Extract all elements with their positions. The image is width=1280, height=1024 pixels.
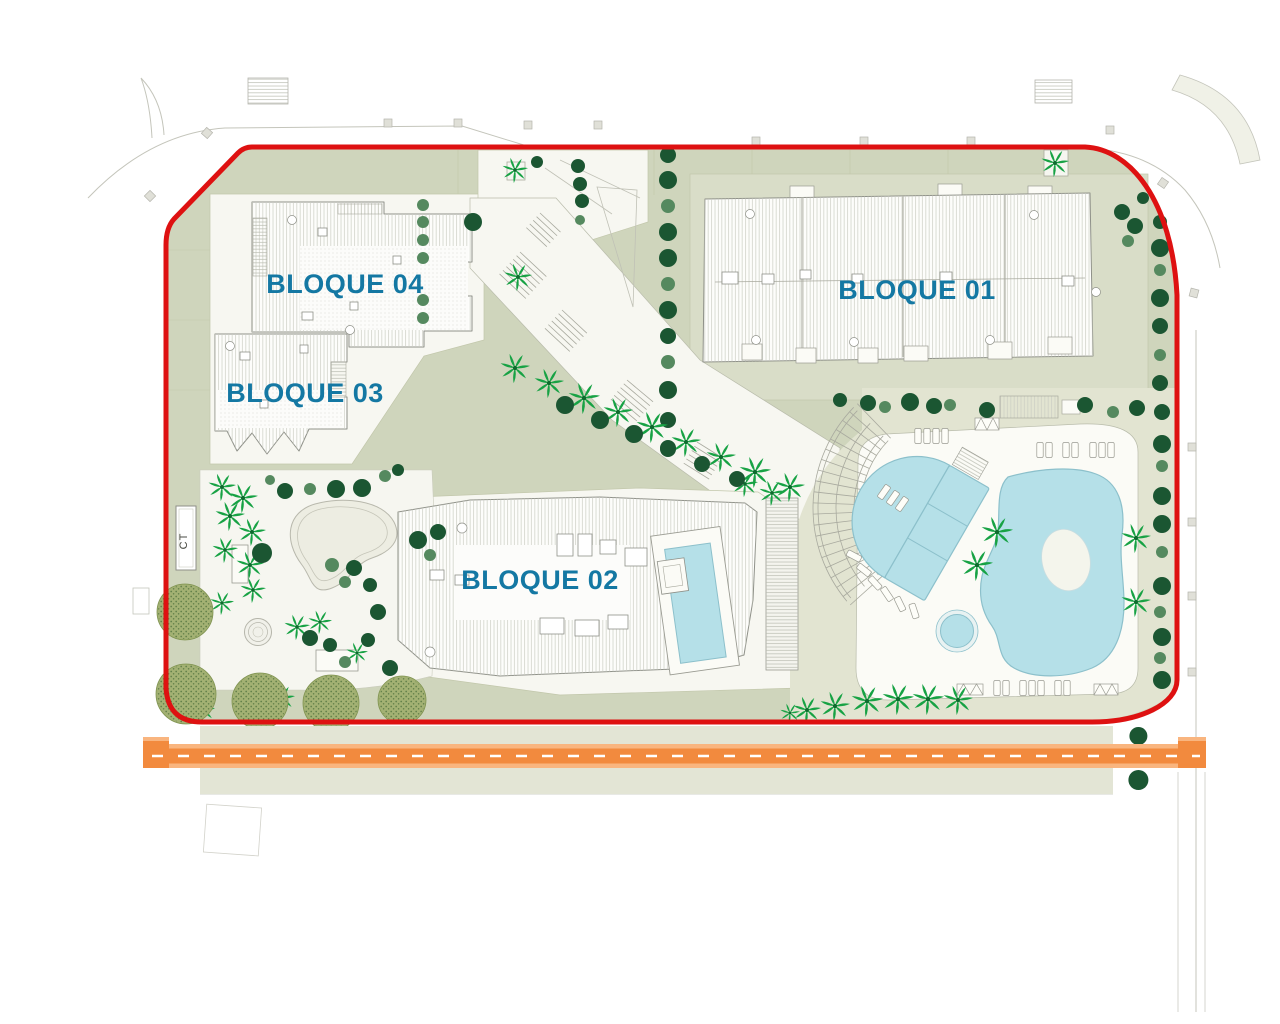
tree-icon bbox=[660, 328, 676, 344]
tree-icon bbox=[417, 312, 429, 324]
tree-icon bbox=[417, 216, 429, 228]
sun-lounger bbox=[1029, 681, 1035, 696]
tree-icon bbox=[424, 549, 436, 561]
kids-pool bbox=[936, 610, 978, 652]
tree-icon bbox=[575, 194, 589, 208]
tree-icon bbox=[363, 578, 377, 592]
tree-icon bbox=[1154, 349, 1166, 361]
sun-lounger bbox=[1038, 681, 1044, 696]
sun-lounger bbox=[994, 681, 1000, 696]
sun-lounger bbox=[1063, 443, 1069, 458]
tree-icon bbox=[659, 301, 677, 319]
tree-icon bbox=[327, 480, 345, 498]
tree-icon bbox=[833, 393, 847, 407]
tree-icon bbox=[944, 399, 956, 411]
sun-lounger bbox=[933, 429, 939, 444]
road-end-right bbox=[1178, 737, 1206, 768]
tree-icon bbox=[659, 381, 677, 399]
tree-icon bbox=[339, 576, 351, 588]
tree-icon bbox=[1127, 218, 1143, 234]
tree-icon bbox=[1153, 671, 1171, 689]
tree-icon bbox=[1137, 192, 1149, 204]
tree-icon bbox=[252, 543, 272, 563]
tree-icon bbox=[1154, 606, 1166, 618]
tree-icon bbox=[1114, 204, 1130, 220]
tree-icon bbox=[361, 633, 375, 647]
tree-icon bbox=[659, 223, 677, 241]
tree-icon bbox=[346, 560, 362, 576]
tree-icon bbox=[1152, 375, 1168, 391]
label-bloque-01: BLOQUE 01 bbox=[838, 275, 996, 305]
sun-lounger bbox=[1037, 443, 1043, 458]
site-plan: CT bbox=[0, 0, 1280, 1024]
tree-icon bbox=[417, 234, 429, 246]
label-bloque-03: BLOQUE 03 bbox=[226, 378, 384, 408]
corner-arc-topright bbox=[1172, 75, 1260, 164]
tree-icon bbox=[370, 604, 386, 620]
main-road bbox=[143, 726, 1206, 794]
tree-icon bbox=[325, 558, 339, 572]
tree-icon bbox=[661, 277, 675, 291]
tree-icon bbox=[979, 402, 995, 418]
rack bbox=[975, 418, 999, 430]
tree-icon bbox=[659, 249, 677, 267]
tree-icon bbox=[1077, 397, 1093, 413]
label-bloque-02: BLOQUE 02 bbox=[461, 565, 619, 595]
tree-icon bbox=[430, 524, 446, 540]
rack bbox=[1094, 684, 1118, 695]
tree-icon bbox=[901, 393, 919, 411]
sidewalk-curl-topleft bbox=[141, 78, 164, 138]
tree-icon bbox=[302, 630, 318, 646]
sun-lounger bbox=[1064, 681, 1070, 696]
tree-icon bbox=[1153, 577, 1171, 595]
bench bbox=[316, 650, 358, 671]
ct-label: CT bbox=[178, 533, 190, 550]
tree-icon bbox=[575, 215, 585, 225]
curb-lines-bottom bbox=[200, 770, 1205, 1012]
tree-icon bbox=[926, 398, 942, 414]
tree-icon bbox=[1156, 460, 1168, 472]
tree-icon bbox=[879, 401, 891, 413]
tree-icon bbox=[556, 396, 574, 414]
crosswalk-hatches-top bbox=[248, 78, 1072, 104]
tree-icon bbox=[571, 159, 585, 173]
tree-icon bbox=[591, 411, 609, 429]
road-end-left bbox=[143, 737, 169, 768]
sun-lounger bbox=[1072, 443, 1078, 458]
label-bloque-04: BLOQUE 04 bbox=[266, 269, 424, 299]
tree-icon bbox=[323, 638, 337, 652]
utility-box-left bbox=[133, 588, 149, 614]
tree bbox=[1128, 770, 1148, 790]
tree-icon bbox=[1154, 404, 1170, 420]
tree-icon bbox=[1153, 435, 1171, 453]
tree-icon bbox=[339, 656, 351, 668]
ct-transformer: CT bbox=[176, 506, 196, 570]
tree-icon bbox=[694, 456, 710, 472]
tree-icon bbox=[729, 471, 745, 487]
sun-lounger bbox=[924, 429, 930, 444]
tree-icon bbox=[1153, 628, 1171, 646]
site-plan-svg: CT bbox=[0, 0, 1280, 1024]
tree-icon bbox=[464, 213, 482, 231]
tree-icon bbox=[661, 199, 675, 213]
sun-lounger bbox=[1003, 681, 1009, 696]
tree-icon bbox=[531, 156, 543, 168]
sun-lounger bbox=[1055, 681, 1061, 696]
tree-icon bbox=[1151, 239, 1169, 257]
sun-lounger bbox=[1090, 443, 1096, 458]
plot-outline-below-road bbox=[203, 804, 261, 856]
tree-icon bbox=[409, 531, 427, 549]
tree-icon bbox=[382, 660, 398, 676]
tree-icon bbox=[661, 355, 675, 369]
tree-icon bbox=[417, 199, 429, 211]
tree-icon bbox=[660, 441, 676, 457]
sun-lounger bbox=[1108, 443, 1114, 458]
tree-icon bbox=[1151, 289, 1169, 307]
tree-icon bbox=[304, 483, 316, 495]
sun-lounger bbox=[1099, 443, 1105, 458]
tree-icon bbox=[1152, 318, 1168, 334]
pergola-south bbox=[1000, 396, 1058, 418]
tree-icon bbox=[625, 425, 643, 443]
tree-icon bbox=[277, 483, 293, 499]
tree-icon bbox=[1122, 235, 1134, 247]
tree-icon bbox=[265, 475, 275, 485]
tree-icon bbox=[1154, 264, 1166, 276]
tree-icon bbox=[353, 479, 371, 497]
tree-icon bbox=[392, 464, 404, 476]
tree-icon bbox=[1154, 652, 1166, 664]
tree-icon bbox=[1153, 487, 1171, 505]
sun-lounger bbox=[1046, 443, 1052, 458]
tree-icon bbox=[1156, 546, 1168, 558]
tree-icon bbox=[417, 252, 429, 264]
tree-icon bbox=[860, 395, 876, 411]
tree-icon bbox=[1107, 406, 1119, 418]
tree-icon bbox=[659, 171, 677, 189]
sun-lounger bbox=[942, 429, 948, 444]
tree-icon bbox=[573, 177, 587, 191]
tree bbox=[1129, 727, 1147, 745]
sun-lounger bbox=[915, 429, 921, 444]
canopy-tree-icon bbox=[378, 676, 426, 724]
tree-icon bbox=[1129, 400, 1145, 416]
tree-icon bbox=[379, 470, 391, 482]
sun-lounger bbox=[1020, 681, 1026, 696]
tree-icon bbox=[1153, 515, 1171, 533]
